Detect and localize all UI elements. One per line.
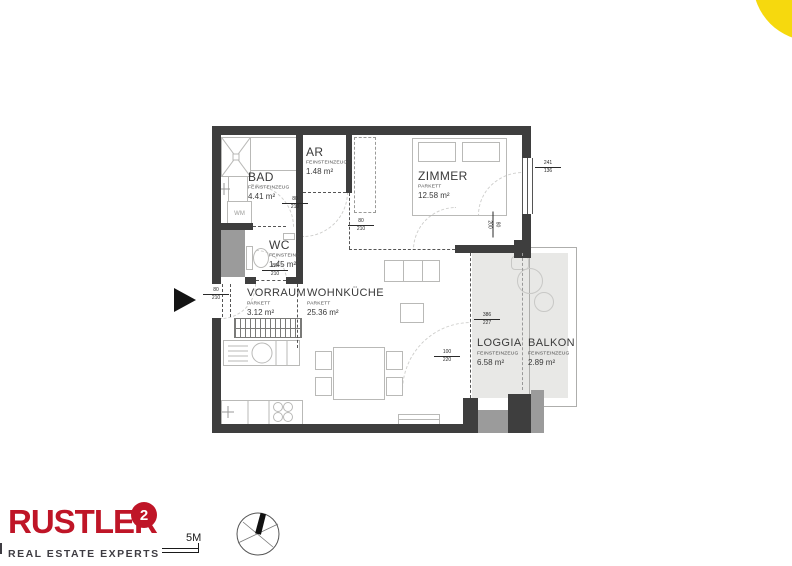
couch [384,260,440,282]
dimension-ar-door: 80210 [348,219,374,232]
wall [286,277,303,284]
room-area: 2.89 m² [528,359,579,367]
wall [245,277,256,284]
door-opening-dashed [303,192,346,193]
window [522,158,533,214]
room-label-vorraum: VORRAUM PARKETT 3.12 m² [247,287,306,317]
shower [221,137,251,177]
loggia-slider-dashed [470,253,471,398]
wall [212,126,221,284]
wardrobe [354,137,376,213]
room-finish: PARKETT [418,184,459,189]
wall [212,126,531,135]
room-finish: PARKETT [307,301,370,306]
room-area: 25.36 m² [307,309,384,317]
bathtub [250,137,297,171]
room-label-loggia: LOGGIA FEINSTEINZEUG 6.58 m² [477,337,528,367]
room-finish: PARKETT [247,301,295,306]
installation-shaft [221,230,245,277]
room-name: BAD [248,171,299,183]
scale-bar-tick [198,543,199,553]
door-opening-dashed [256,280,286,281]
wall [522,126,531,158]
entrance-arrow-icon [174,288,196,312]
room-name: BALKON [528,337,579,349]
room-label-wohnkueche: WOHNKÜCHE PARKETT 25.36 m² [307,287,384,317]
wall [455,245,531,253]
wall [478,410,508,433]
room-name: WC [269,239,308,251]
kitchen-counter [221,400,303,425]
dimension-bad-door: 80210 [282,197,308,210]
entry-door-leaf [230,284,231,317]
room-name: WOHNKÜCHE [307,287,384,299]
room-area: 6.58 m² [477,359,528,367]
washing-machine-label: WM [234,211,245,217]
dimension-entry-door: 80210 [203,288,229,301]
side-table [400,303,424,323]
brand-tagline: REAL ESTATE EXPERTS [8,548,160,560]
scale-bar [162,552,199,553]
room-finish: FEINSTEINZEUG [477,351,518,356]
scale-bar [162,548,199,549]
wall [463,398,478,433]
dimension-wc-door: 80210 [262,264,288,277]
dimension-zimmer-door: 80200 [487,212,500,238]
room-finish: FEINSTEINZEUG [306,160,347,165]
outdoor-table [511,256,529,270]
room-name: LOGGIA [477,337,528,349]
dimension-loggia-opening: 386227 [474,313,500,326]
door-opening-dashed [253,226,286,227]
room-finish: FEINSTEINZ. [269,253,301,258]
radiator [234,318,302,338]
wall [212,318,221,433]
pillow [462,142,500,162]
north-compass-icon [234,510,282,558]
brand-tagline-tick [0,543,2,554]
room-area: 3.12 m² [247,309,306,317]
room-name: AR [306,146,357,158]
brand-logo-superscript-icon: 2 [131,502,157,528]
toilet-tank [246,246,253,270]
wall [531,390,544,433]
dimension-zimmer-window: 241136 [535,161,561,174]
room-name: VORRAUM [247,287,306,299]
room-area: 12.58 m² [418,192,468,200]
chair [386,377,403,396]
chair [315,351,332,370]
chair [315,377,332,396]
outdoor-chair [534,292,554,312]
chair [386,351,403,370]
room-area: 1.48 m² [306,168,357,176]
door-swing-arc [303,192,348,237]
pillow [418,142,456,162]
dimension-balkon-door: 100220 [434,350,460,363]
loggia-balkon-boundary [522,253,523,390]
room-finish: FEINSTEINZEUG [528,351,569,356]
kitchen-counter [223,340,300,366]
room-finish: FEINSTEINZEUG [248,185,289,190]
room-boundary-dashed [349,249,455,250]
wall [221,223,253,230]
wall [212,424,467,433]
wall [508,394,531,433]
room-label-balkon: BALKON FEINSTEINZEUG 2.89 m² [528,337,579,367]
floor-plan: WM BAD FEINSTE [0,0,792,566]
room-name: ZIMMER [418,170,468,182]
room-label-ar: AR FEINSTEINZEUG 1.48 m² [306,146,357,176]
room-label-zimmer: ZIMMER PARKETT 12.58 m² [418,170,468,200]
outdoor-chair [517,268,543,294]
dining-table [333,347,385,400]
washbasin [228,176,248,202]
